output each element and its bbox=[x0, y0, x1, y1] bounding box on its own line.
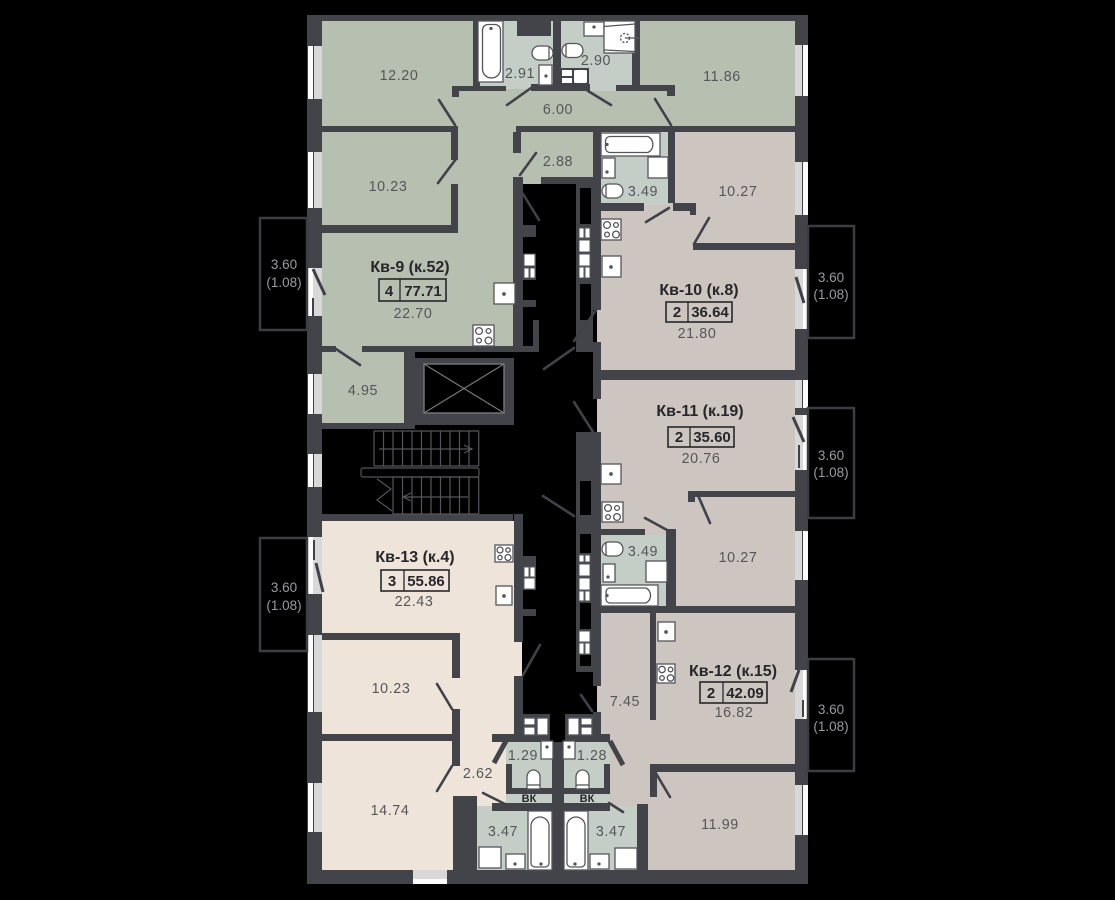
svg-text:3: 3 bbox=[388, 573, 396, 590]
svg-text:36.64: 36.64 bbox=[691, 304, 729, 321]
svg-text:3.49: 3.49 bbox=[628, 544, 658, 560]
svg-text:10.23: 10.23 bbox=[369, 179, 408, 195]
svg-text:3.60: 3.60 bbox=[818, 702, 844, 717]
svg-text:2: 2 bbox=[673, 304, 681, 321]
svg-text:3.60: 3.60 bbox=[818, 448, 844, 463]
svg-text:77.71: 77.71 bbox=[404, 283, 442, 300]
svg-text:(1.08): (1.08) bbox=[266, 275, 301, 290]
svg-text:22.43: 22.43 bbox=[395, 594, 434, 610]
svg-text:55.86: 55.86 bbox=[407, 573, 445, 590]
svg-text:3.47: 3.47 bbox=[596, 824, 626, 840]
svg-text:11.99: 11.99 bbox=[701, 817, 739, 833]
svg-text:10.27: 10.27 bbox=[719, 184, 758, 200]
svg-text:3.60: 3.60 bbox=[271, 580, 297, 595]
svg-text:16.82: 16.82 bbox=[715, 705, 754, 721]
svg-text:2.90: 2.90 bbox=[581, 53, 611, 69]
svg-text:7.45: 7.45 bbox=[610, 694, 640, 710]
svg-text:2.62: 2.62 bbox=[463, 766, 493, 782]
svg-text:10.27: 10.27 bbox=[719, 550, 758, 566]
svg-text:22.70: 22.70 bbox=[394, 306, 433, 322]
svg-text:20.76: 20.76 bbox=[682, 451, 721, 467]
svg-text:3.60: 3.60 bbox=[271, 257, 297, 272]
svg-text:(1.08): (1.08) bbox=[266, 598, 301, 613]
svg-text:ВК: ВК bbox=[522, 793, 537, 805]
svg-text:3.47: 3.47 bbox=[488, 824, 518, 840]
svg-text:3.60: 3.60 bbox=[818, 270, 844, 285]
svg-text:2.88: 2.88 bbox=[543, 154, 573, 170]
svg-text:4: 4 bbox=[385, 283, 394, 300]
svg-text:3.49: 3.49 bbox=[628, 184, 658, 200]
svg-text:35.60: 35.60 bbox=[693, 429, 731, 446]
svg-text:Кв-9 (к.52): Кв-9 (к.52) bbox=[370, 259, 449, 276]
svg-text:21.80: 21.80 bbox=[678, 326, 717, 342]
svg-text:(1.08): (1.08) bbox=[813, 465, 848, 480]
svg-text:6.00: 6.00 bbox=[543, 102, 573, 118]
svg-text:42.09: 42.09 bbox=[726, 685, 764, 702]
svg-text:1.28: 1.28 bbox=[577, 748, 607, 764]
svg-text:1.29: 1.29 bbox=[508, 748, 538, 764]
svg-text:11.86: 11.86 bbox=[703, 69, 741, 85]
svg-text:2: 2 bbox=[707, 685, 715, 702]
svg-text:2: 2 bbox=[675, 429, 683, 446]
svg-text:2.91: 2.91 bbox=[505, 66, 535, 82]
svg-text:14.74: 14.74 bbox=[371, 803, 410, 819]
svg-text:ВК: ВК bbox=[580, 793, 595, 805]
svg-text:4.95: 4.95 bbox=[348, 383, 378, 399]
svg-text:10.23: 10.23 bbox=[372, 681, 411, 697]
svg-text:Кв-11 (к.19): Кв-11 (к.19) bbox=[656, 403, 743, 420]
svg-text:Кв-10 (к.8): Кв-10 (к.8) bbox=[659, 282, 738, 299]
svg-text:Кв-12 (к.15): Кв-12 (к.15) bbox=[689, 663, 777, 680]
svg-text:Кв-13 (к.4): Кв-13 (к.4) bbox=[375, 549, 454, 566]
svg-text:(1.08): (1.08) bbox=[813, 287, 848, 302]
svg-text:12.20: 12.20 bbox=[380, 68, 419, 84]
svg-text:(1.08): (1.08) bbox=[813, 719, 848, 734]
